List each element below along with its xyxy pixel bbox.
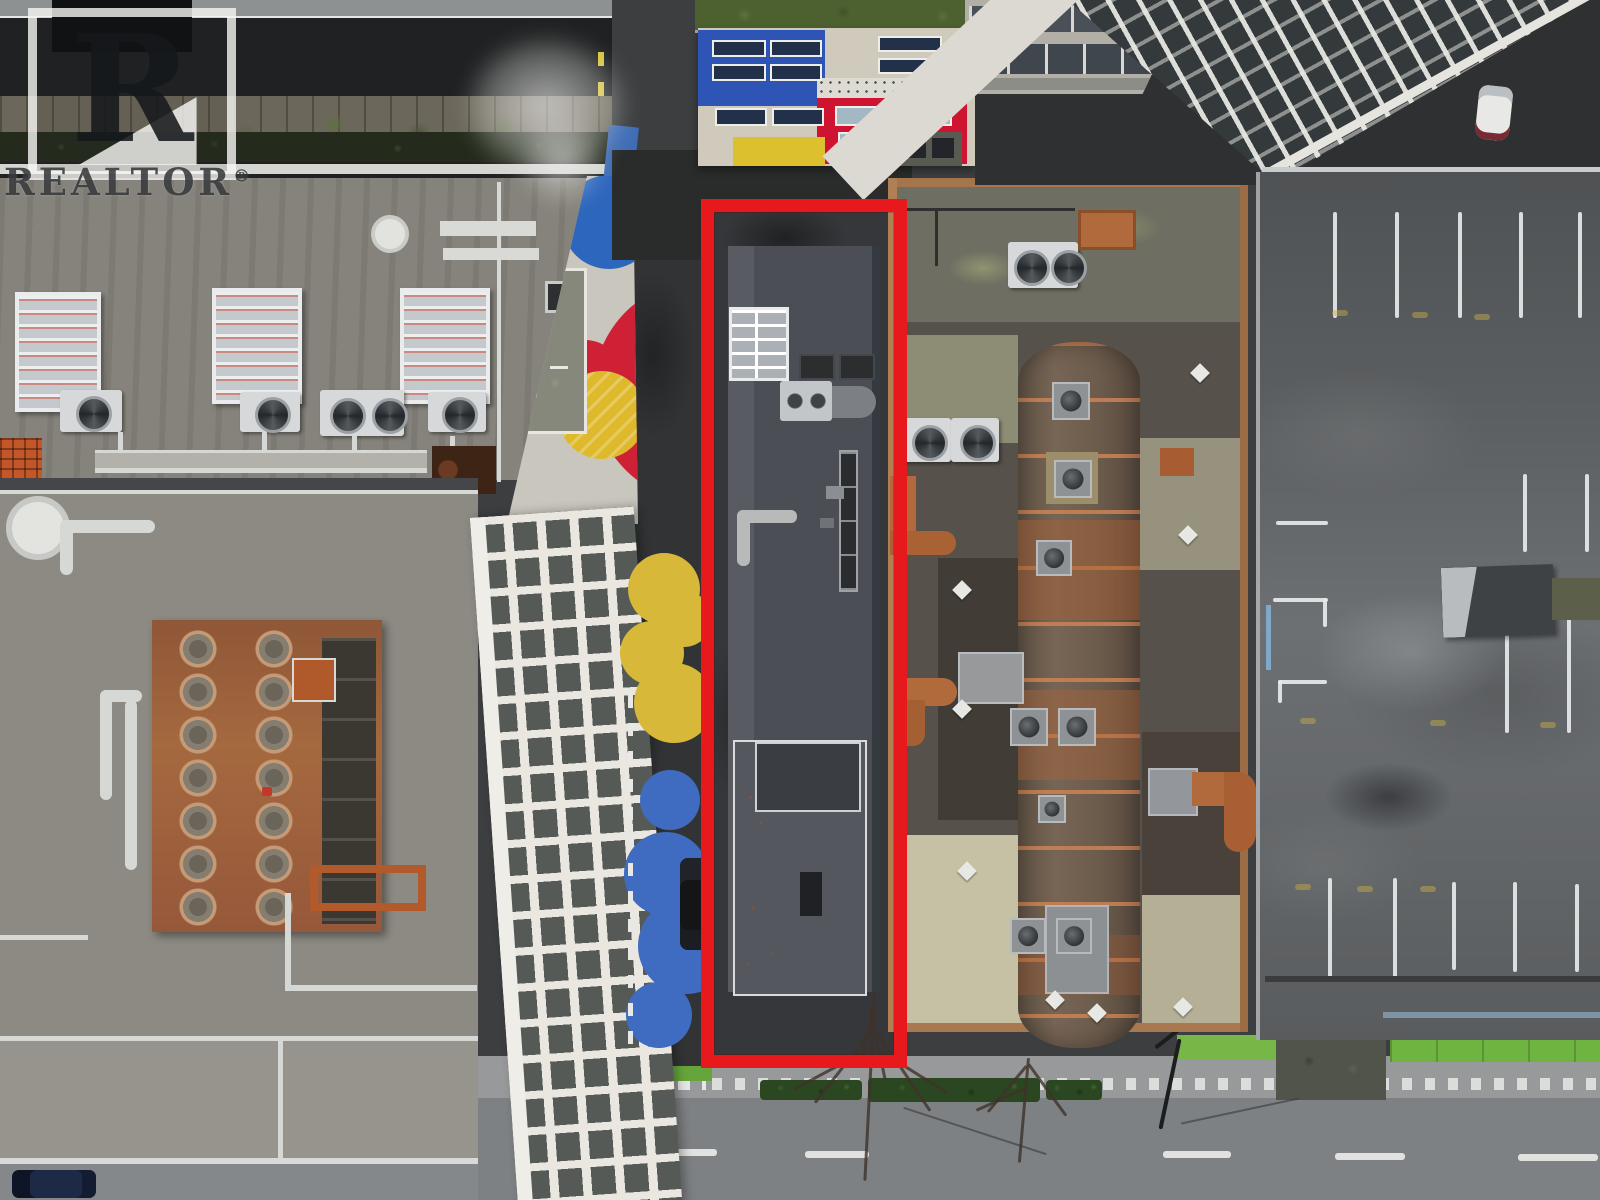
- entry-door: [932, 138, 954, 158]
- conduit-drop: [262, 432, 267, 452]
- parking-stall-line: [1452, 882, 1456, 970]
- rooftop-pipes: [905, 208, 1075, 211]
- hvac-dual-fan-unit: [1008, 242, 1078, 288]
- stall-number-faded: [1540, 722, 1556, 728]
- lane-dash: [1335, 1153, 1405, 1160]
- mondrian-yellow-panel: [733, 137, 825, 166]
- parapet-line: [278, 1038, 283, 1164]
- rooftop-unit: [958, 652, 1024, 704]
- conduit-drop: [352, 436, 357, 452]
- copper-box: [1160, 448, 1194, 476]
- white-pipe: [60, 520, 73, 575]
- rooftop-pipes: [935, 208, 938, 266]
- cooling-tower-fans: [160, 628, 312, 930]
- white-pipe: [125, 700, 137, 870]
- parking-stall-line: [1513, 882, 1517, 972]
- parking-stall-line: [1458, 212, 1462, 318]
- realtor-brand-text: REALTOR: [4, 160, 233, 204]
- copper-rooftop-unit: [1078, 210, 1136, 250]
- rooftop-walkway: [95, 450, 427, 469]
- realtor-logo-letter: R: [37, 11, 227, 165]
- white-pipe: [60, 520, 155, 533]
- white-vent-cylinder: [371, 215, 409, 253]
- roof-gap-shadow: [0, 478, 478, 490]
- window: [772, 108, 824, 126]
- window: [712, 40, 766, 57]
- parking-stall-line: [1395, 212, 1399, 318]
- parking-stall-line: [1276, 521, 1328, 525]
- realtor-watermark-text: REALTOR®: [4, 160, 250, 204]
- parking-stall-line: [1323, 598, 1327, 627]
- yellow-paint-splat: [612, 545, 704, 750]
- conduit-drop: [118, 432, 123, 452]
- oil-stain: [1324, 762, 1454, 832]
- hvac-fan-unit: [903, 418, 951, 462]
- orange-frame: [310, 865, 426, 911]
- lot-shed: [1441, 564, 1555, 638]
- parking-stall-line: [1393, 878, 1397, 978]
- hvac-fan-unit: [951, 418, 999, 462]
- lot-tar-line: [1265, 976, 1600, 982]
- parking-stall-line: [1328, 878, 1332, 978]
- stall-number-faded: [1332, 310, 1348, 316]
- cream-roof-patch: [1142, 895, 1240, 1023]
- parapet-corner: [285, 985, 477, 991]
- realtor-watermark: R REALTOR®: [0, 0, 260, 215]
- fence-blue-segment: [1266, 605, 1271, 670]
- stall-number-faded: [1295, 884, 1311, 890]
- property-highlight-outline: [701, 199, 907, 1068]
- parking-dash-line: [628, 695, 633, 1055]
- parking-stall-line: [1273, 598, 1328, 602]
- white-duct: [440, 221, 536, 236]
- high-rise-tower: [1055, 0, 1600, 188]
- copper-j-duct: [1224, 772, 1256, 852]
- hvac-fan-unit: [60, 390, 122, 432]
- white-pipe: [100, 690, 142, 702]
- bare-tree: [975, 1048, 1085, 1180]
- parking-stall-line: [1519, 212, 1523, 318]
- stall-number-faded: [1357, 886, 1373, 892]
- stall-number-faded: [1300, 718, 1316, 724]
- skylight: [400, 288, 490, 404]
- parapet-corner: [285, 893, 291, 989]
- lower-roof-terrace: [0, 1040, 478, 1162]
- white-van: [1474, 84, 1513, 141]
- stall-number-faded: [1430, 720, 1446, 726]
- window: [878, 36, 942, 52]
- red-object: [262, 787, 272, 796]
- hvac-fan-unit: [240, 392, 300, 432]
- barrel-vent: [1054, 460, 1092, 498]
- hvac-fan-unit: [428, 392, 486, 432]
- window: [715, 108, 767, 126]
- hvac-dual-fan-unit: [320, 390, 404, 436]
- barrel-vent: [1056, 918, 1092, 954]
- parapet-line: [0, 935, 88, 940]
- window: [770, 64, 822, 81]
- parapet-line: [0, 490, 478, 494]
- parking-stall-line: [1578, 212, 1582, 318]
- barrel-vent: [1052, 382, 1090, 420]
- realtor-logo-r-box: R: [28, 8, 236, 180]
- steam-plume: [515, 115, 610, 210]
- aerial-photo-scene: R REALTOR®: [0, 0, 1600, 1200]
- moss-patch: [1552, 578, 1600, 620]
- window: [712, 64, 766, 81]
- registered-mark: ®: [233, 167, 250, 187]
- parapet-line: [0, 1036, 478, 1041]
- barrel-vent: [1036, 540, 1072, 576]
- parking-stall-line: [1585, 474, 1589, 552]
- parking-stall-line: [1278, 680, 1327, 684]
- parking-stall-line: [1505, 633, 1509, 733]
- parking-stall-line: [1567, 610, 1571, 733]
- lot-blue-edge: [1383, 1012, 1600, 1018]
- rooftop-unit: [1148, 768, 1198, 816]
- barrel-vent: [1058, 708, 1096, 746]
- patio-furniture: [550, 366, 568, 369]
- window: [770, 40, 822, 57]
- stall-number-faded: [1412, 312, 1428, 318]
- skylight: [212, 288, 302, 404]
- stall-number-faded: [1474, 314, 1490, 320]
- parking-stall-line: [1333, 212, 1337, 318]
- conduit-pipe: [95, 468, 427, 473]
- parking-stall-line: [1278, 680, 1282, 703]
- parked-car-blue: [12, 1170, 96, 1198]
- parking-stall-line: [1523, 474, 1527, 552]
- white-pipe: [100, 690, 112, 800]
- parking-stall-line: [1575, 884, 1579, 972]
- white-duct: [443, 248, 539, 260]
- lane-dash: [1163, 1151, 1231, 1158]
- lane-dash: [1518, 1154, 1598, 1161]
- barrel-vent: [1010, 918, 1046, 954]
- orange-roof-box: [292, 658, 336, 702]
- barrel-vent: [1010, 708, 1048, 746]
- chain-link-fence: [1256, 172, 1260, 1040]
- barrel-vent: [1038, 795, 1066, 823]
- stall-number-faded: [1420, 886, 1436, 892]
